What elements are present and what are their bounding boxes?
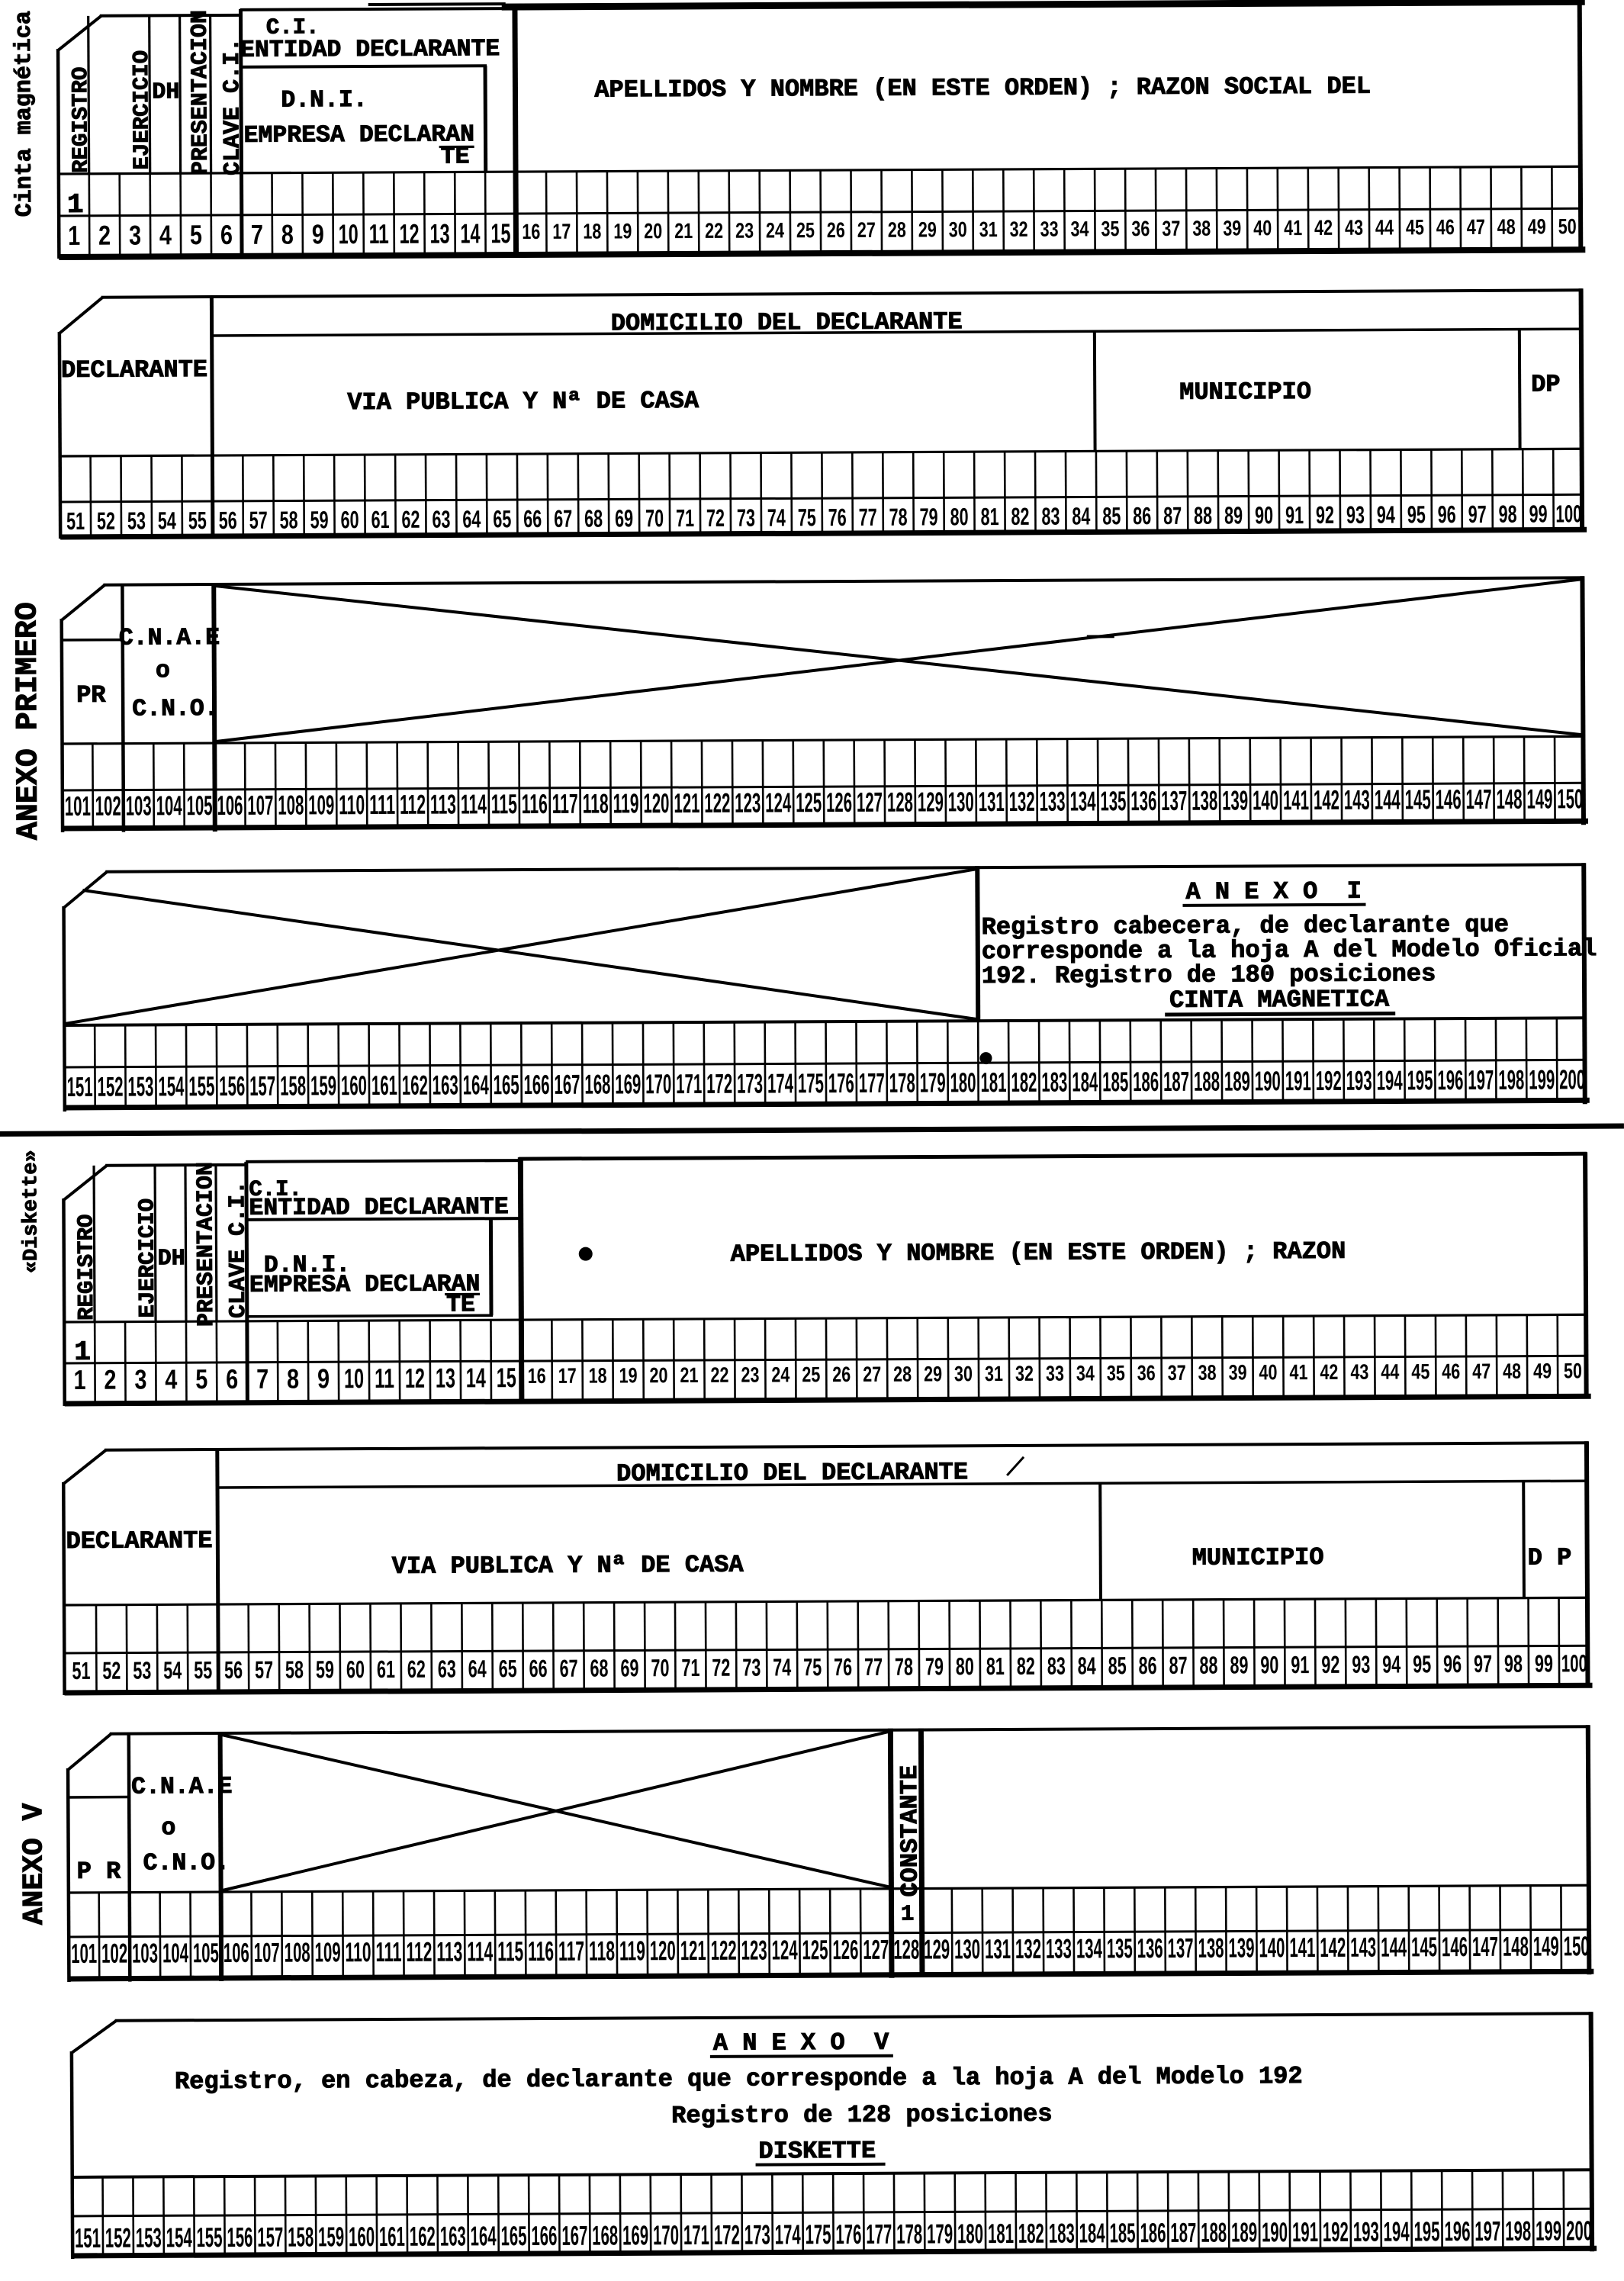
svg-text:179: 179 — [920, 1067, 946, 1098]
svg-text:55: 55 — [194, 1656, 212, 1684]
svg-text:164: 164 — [463, 1069, 489, 1100]
svg-text:93: 93 — [1346, 501, 1365, 529]
svg-text:72: 72 — [706, 504, 725, 532]
svg-text:190: 190 — [1255, 1065, 1281, 1096]
svg-text:116: 116 — [528, 1935, 554, 1967]
svg-text:94: 94 — [1377, 500, 1395, 528]
svg-text:171: 171 — [683, 2219, 709, 2250]
svg-text:47: 47 — [1472, 1359, 1491, 1383]
svg-text:105: 105 — [186, 790, 212, 821]
svg-text:112: 112 — [400, 789, 426, 820]
svg-text:158: 158 — [280, 1070, 306, 1101]
svg-text:38: 38 — [1198, 1361, 1217, 1385]
svg-text:128: 128 — [887, 787, 913, 818]
svg-text:10: 10 — [344, 1362, 364, 1394]
svg-text:165: 165 — [500, 2220, 526, 2251]
svg-text:68: 68 — [584, 505, 603, 532]
svg-text:150: 150 — [1564, 1930, 1590, 1961]
svg-text:185: 185 — [1109, 2217, 1135, 2248]
svg-text:132: 132 — [1009, 786, 1035, 817]
svg-text:13: 13 — [436, 1362, 455, 1394]
svg-text:157: 157 — [257, 2221, 283, 2253]
svg-text:47: 47 — [1467, 215, 1485, 239]
svg-text:1: 1 — [901, 1902, 915, 1927]
svg-text:PRESENTACION: PRESENTACION — [188, 10, 214, 175]
svg-text:43: 43 — [1345, 216, 1363, 240]
svg-text:187: 187 — [1170, 2217, 1196, 2248]
svg-text:154: 154 — [158, 1070, 184, 1102]
svg-text:76: 76 — [828, 503, 847, 531]
svg-text:129: 129 — [918, 786, 944, 817]
svg-text:80: 80 — [956, 1652, 974, 1680]
svg-text:135: 135 — [1107, 1932, 1133, 1964]
svg-text:197: 197 — [1468, 1064, 1494, 1095]
svg-text:DOMICILIO DEL DECLARANTE: DOMICILIO DEL DECLARANTE — [611, 307, 963, 337]
svg-text:161: 161 — [379, 2221, 405, 2252]
svg-text:117: 117 — [558, 1935, 584, 1967]
svg-text:CONSTANTE: CONSTANTE — [896, 1765, 925, 1897]
svg-text:187: 187 — [1163, 1066, 1189, 1097]
svg-text:125: 125 — [802, 1934, 828, 1965]
svg-text:189: 189 — [1231, 2216, 1257, 2247]
svg-text:34: 34 — [1070, 217, 1089, 240]
svg-text:183: 183 — [1041, 1067, 1067, 1098]
svg-text:97: 97 — [1468, 500, 1487, 528]
svg-text:55: 55 — [188, 507, 207, 534]
svg-text:23: 23 — [735, 219, 754, 243]
svg-text:56: 56 — [219, 507, 237, 534]
svg-text:136: 136 — [1137, 1932, 1163, 1964]
svg-text:26: 26 — [827, 218, 845, 242]
svg-text:130: 130 — [948, 786, 974, 817]
svg-text:99: 99 — [1529, 500, 1548, 527]
svg-text:33: 33 — [1046, 1362, 1064, 1385]
svg-text:8: 8 — [287, 1363, 299, 1395]
svg-text:39: 39 — [1229, 1360, 1247, 1384]
svg-text:183: 183 — [1049, 2218, 1075, 2249]
svg-text:115: 115 — [491, 788, 517, 819]
svg-text:79: 79 — [925, 1652, 944, 1680]
svg-text:82: 82 — [1011, 503, 1029, 530]
svg-text:A N E X O I: A N E X O I — [1185, 877, 1362, 906]
svg-text:73: 73 — [737, 504, 755, 532]
svg-text:108: 108 — [285, 1936, 310, 1967]
svg-text:164: 164 — [471, 2220, 497, 2251]
svg-text:106: 106 — [217, 790, 243, 821]
svg-text:29: 29 — [924, 1362, 942, 1385]
svg-text:200: 200 — [1566, 2215, 1592, 2246]
svg-text:74: 74 — [773, 1653, 791, 1681]
svg-text:123: 123 — [735, 787, 761, 819]
svg-text:95: 95 — [1407, 500, 1426, 528]
svg-text:191: 191 — [1285, 1065, 1311, 1096]
svg-text:126: 126 — [832, 1934, 858, 1965]
svg-text:142: 142 — [1320, 1932, 1346, 1963]
svg-text:160: 160 — [341, 1070, 367, 1101]
svg-text:126: 126 — [826, 787, 852, 818]
svg-text:60: 60 — [346, 1655, 365, 1683]
svg-text:100: 100 — [1555, 500, 1581, 527]
svg-text:PR: PR — [76, 681, 106, 709]
svg-text:145: 145 — [1411, 1931, 1437, 1962]
svg-text:38: 38 — [1192, 217, 1211, 240]
svg-text:177: 177 — [859, 1067, 885, 1099]
svg-text:2: 2 — [104, 1364, 116, 1395]
svg-text:138: 138 — [1198, 1932, 1224, 1964]
svg-text:EJERCICIO: EJERCICIO — [134, 1198, 160, 1318]
svg-text:19: 19 — [613, 219, 632, 243]
svg-text:151: 151 — [67, 1071, 93, 1102]
svg-text:65: 65 — [499, 1655, 517, 1682]
svg-text:15: 15 — [497, 1362, 516, 1393]
svg-text:172: 172 — [706, 1068, 732, 1099]
svg-text:DP: DP — [1531, 370, 1561, 398]
svg-text:198: 198 — [1505, 2215, 1531, 2247]
svg-text:66: 66 — [529, 1655, 548, 1682]
svg-text:DECLARANTE: DECLARANTE — [61, 356, 207, 384]
svg-text:REGISTRO: REGISTRO — [73, 1214, 99, 1321]
svg-text:3: 3 — [134, 1363, 146, 1395]
svg-text:173: 173 — [737, 1068, 763, 1099]
svg-text:89: 89 — [1230, 1651, 1248, 1678]
svg-text:PRESENTACION: PRESENTACION — [193, 1162, 220, 1327]
svg-text:32: 32 — [1015, 1362, 1034, 1385]
svg-text:88: 88 — [1194, 502, 1212, 529]
svg-text:161: 161 — [371, 1070, 397, 1101]
svg-text:VIA PUBLICA Y Nª DE CASA: VIA PUBLICA Y Nª DE CASA — [392, 1551, 744, 1581]
svg-text:99: 99 — [1535, 1649, 1553, 1677]
svg-text:114: 114 — [467, 1935, 493, 1967]
svg-text:41: 41 — [1289, 1360, 1307, 1384]
svg-text:96: 96 — [1438, 500, 1456, 528]
svg-text:131: 131 — [985, 1933, 1011, 1964]
svg-text:13: 13 — [429, 218, 449, 249]
svg-text:42: 42 — [1320, 1360, 1338, 1384]
svg-text:5: 5 — [190, 219, 202, 250]
svg-text:84: 84 — [1078, 1652, 1096, 1679]
svg-text:40: 40 — [1259, 1360, 1277, 1384]
svg-text:165: 165 — [494, 1069, 519, 1100]
svg-text:110: 110 — [339, 789, 365, 820]
svg-text:198: 198 — [1498, 1064, 1524, 1095]
svg-text:163: 163 — [433, 1069, 458, 1100]
svg-text:4: 4 — [159, 219, 172, 250]
svg-text:74: 74 — [767, 503, 786, 531]
svg-text:Cinta magnética: Cinta magnética — [11, 11, 38, 217]
svg-text:87: 87 — [1163, 502, 1182, 529]
svg-text:182: 182 — [1011, 1067, 1037, 1098]
svg-text:37: 37 — [1168, 1361, 1186, 1385]
svg-text:107: 107 — [247, 790, 273, 821]
svg-text:98: 98 — [1504, 1650, 1523, 1678]
svg-text:169: 169 — [615, 1068, 641, 1099]
svg-text:92: 92 — [1316, 501, 1334, 529]
svg-text:190: 190 — [1262, 2216, 1288, 2247]
svg-text:196: 196 — [1444, 2215, 1470, 2247]
svg-text:41: 41 — [1284, 216, 1302, 240]
svg-text:197: 197 — [1474, 2215, 1500, 2247]
svg-text:16: 16 — [528, 1364, 546, 1388]
svg-text:138: 138 — [1191, 785, 1217, 816]
svg-text:104: 104 — [162, 1937, 188, 1968]
svg-text:87: 87 — [1169, 1652, 1187, 1679]
svg-text:71: 71 — [681, 1654, 699, 1681]
svg-text:APELLIDOS Y NOMBRE (EN ESTE OR: APELLIDOS Y NOMBRE (EN ESTE ORDEN) ; RAZ… — [731, 1237, 1346, 1269]
svg-text:57: 57 — [249, 507, 268, 534]
svg-text:134: 134 — [1076, 1932, 1102, 1964]
svg-text:100: 100 — [1561, 1649, 1587, 1677]
svg-text:115: 115 — [497, 1935, 523, 1967]
svg-text:192: 192 — [1323, 2216, 1349, 2247]
svg-text:64: 64 — [468, 1655, 487, 1682]
svg-text:153: 153 — [127, 1070, 153, 1102]
svg-text:169: 169 — [622, 2219, 648, 2250]
svg-text:122: 122 — [711, 1935, 737, 1966]
svg-text:MUNICIPIO: MUNICIPIO — [1179, 378, 1311, 407]
svg-text:78: 78 — [895, 1653, 913, 1681]
svg-text:199: 199 — [1536, 2215, 1561, 2246]
svg-text:63: 63 — [438, 1655, 456, 1683]
svg-text:51: 51 — [66, 507, 85, 535]
svg-text:182: 182 — [1018, 2218, 1044, 2249]
svg-text:TE: TE — [446, 1292, 475, 1318]
svg-text:DOMICILIO DEL DECLARANTE: DOMICILIO DEL DECLARANTE — [616, 1458, 968, 1488]
svg-text:17: 17 — [558, 1364, 577, 1388]
svg-text:135: 135 — [1100, 785, 1126, 816]
svg-text:46: 46 — [1436, 215, 1455, 239]
svg-text:A N E X O V: A N E X O V — [713, 2028, 889, 2057]
svg-text:175: 175 — [798, 1067, 824, 1099]
svg-text:144: 144 — [1381, 1931, 1407, 1962]
svg-text:58: 58 — [285, 1655, 304, 1683]
svg-text:11: 11 — [375, 1362, 394, 1394]
svg-text:193: 193 — [1346, 1065, 1372, 1096]
svg-text:«Diskette»: «Diskette» — [20, 1150, 43, 1273]
svg-text:6: 6 — [226, 1363, 238, 1395]
svg-text:139: 139 — [1228, 1932, 1254, 1963]
svg-text:48: 48 — [1497, 215, 1516, 239]
svg-text:88: 88 — [1199, 1652, 1217, 1679]
svg-text:145: 145 — [1405, 783, 1431, 815]
svg-text:67: 67 — [554, 505, 572, 532]
svg-text:50: 50 — [1558, 214, 1577, 238]
svg-text:163: 163 — [440, 2220, 466, 2251]
svg-text:98: 98 — [1499, 500, 1517, 528]
svg-text:108: 108 — [278, 789, 304, 820]
svg-text:155: 155 — [188, 1070, 214, 1102]
svg-text:63: 63 — [432, 506, 450, 533]
svg-text:49: 49 — [1533, 1359, 1552, 1382]
svg-text:60: 60 — [340, 506, 359, 533]
svg-text:35: 35 — [1101, 217, 1119, 240]
svg-text:78: 78 — [889, 503, 908, 531]
svg-text:C.N.O.: C.N.O. — [132, 696, 219, 723]
svg-text:103: 103 — [126, 790, 152, 821]
svg-text:ANEXO V: ANEXO V — [18, 1803, 51, 1925]
svg-text:86: 86 — [1138, 1652, 1156, 1679]
svg-text:94: 94 — [1382, 1650, 1400, 1678]
svg-text:69: 69 — [620, 1654, 638, 1681]
svg-text:25: 25 — [796, 218, 815, 242]
svg-text:53: 53 — [127, 507, 146, 534]
svg-text:111: 111 — [375, 1936, 401, 1967]
svg-text:194: 194 — [1377, 1064, 1403, 1095]
svg-text:137: 137 — [1161, 785, 1187, 816]
svg-text:48: 48 — [1503, 1359, 1521, 1383]
svg-text:149: 149 — [1526, 783, 1552, 814]
svg-text:123: 123 — [741, 1935, 767, 1966]
svg-text:36: 36 — [1137, 1361, 1156, 1385]
svg-text:C.N.A.E: C.N.A.E — [131, 1774, 232, 1801]
svg-text:114: 114 — [461, 788, 487, 819]
svg-text:61: 61 — [377, 1655, 395, 1683]
svg-text:54: 54 — [158, 507, 176, 534]
svg-text:20: 20 — [644, 219, 662, 243]
svg-text:VIA PUBLICA Y Nª DE CASA: VIA PUBLICA Y Nª DE CASA — [347, 387, 699, 417]
svg-text:171: 171 — [676, 1068, 702, 1099]
svg-text:143: 143 — [1344, 784, 1370, 816]
svg-text:30: 30 — [954, 1362, 973, 1385]
svg-text:181: 181 — [980, 1067, 1006, 1098]
svg-text:186: 186 — [1133, 1066, 1159, 1097]
svg-text:77: 77 — [864, 1653, 883, 1681]
svg-text:62: 62 — [401, 506, 420, 533]
svg-text:1: 1 — [67, 189, 84, 220]
svg-text:170: 170 — [645, 1068, 671, 1099]
svg-text:152: 152 — [105, 2222, 131, 2254]
svg-text:174: 174 — [767, 1067, 793, 1099]
svg-text:37: 37 — [1162, 217, 1180, 240]
svg-text:156: 156 — [227, 2221, 252, 2253]
svg-text:81: 81 — [986, 1652, 1005, 1680]
svg-text:86: 86 — [1133, 502, 1151, 529]
svg-text:51: 51 — [72, 1657, 90, 1684]
svg-text:69: 69 — [615, 504, 633, 532]
svg-text:120: 120 — [650, 1935, 676, 1966]
svg-text:18: 18 — [589, 1364, 607, 1388]
svg-text:75: 75 — [803, 1653, 822, 1681]
svg-text:30: 30 — [949, 217, 967, 241]
svg-text:136: 136 — [1130, 785, 1156, 816]
svg-text:176: 176 — [835, 2218, 861, 2250]
svg-text:105: 105 — [193, 1937, 219, 1968]
svg-text:159: 159 — [318, 2221, 344, 2252]
svg-text:148: 148 — [1496, 783, 1522, 815]
svg-text:119: 119 — [619, 1935, 645, 1966]
svg-text:28: 28 — [888, 218, 906, 242]
svg-text:185: 185 — [1102, 1066, 1128, 1097]
svg-text:EJERCICIO: EJERCICIO — [129, 50, 155, 170]
svg-text:14: 14 — [460, 217, 480, 249]
svg-text:83: 83 — [1047, 1652, 1066, 1680]
svg-text:21: 21 — [674, 219, 693, 243]
svg-text:57: 57 — [255, 1656, 273, 1684]
svg-text:DH: DH — [158, 1246, 185, 1272]
svg-text:1: 1 — [74, 1337, 91, 1368]
svg-text:167: 167 — [561, 2220, 587, 2251]
svg-text:84: 84 — [1072, 502, 1090, 529]
svg-text:34: 34 — [1076, 1361, 1095, 1385]
svg-text:65: 65 — [493, 505, 511, 532]
svg-text:174: 174 — [775, 2218, 801, 2250]
svg-text:101: 101 — [71, 1938, 97, 1969]
svg-text:188: 188 — [1194, 1066, 1220, 1097]
svg-text:104: 104 — [156, 790, 182, 821]
svg-text:22: 22 — [710, 1363, 728, 1387]
svg-text:140: 140 — [1253, 784, 1278, 816]
svg-text:24: 24 — [766, 218, 784, 242]
svg-text:77: 77 — [859, 503, 877, 531]
svg-text:141: 141 — [1283, 784, 1309, 816]
svg-text:139: 139 — [1222, 784, 1248, 816]
svg-text:75: 75 — [798, 503, 816, 531]
svg-text:176: 176 — [828, 1067, 854, 1099]
svg-text:195: 195 — [1407, 1064, 1433, 1095]
svg-text:CINTA MAGNETICA: CINTA MAGNETICA — [1169, 986, 1390, 1015]
svg-text:186: 186 — [1140, 2217, 1166, 2248]
svg-text:146: 146 — [1442, 1931, 1468, 1962]
svg-text:130: 130 — [954, 1933, 980, 1964]
svg-text:162: 162 — [410, 2221, 436, 2252]
svg-text:70: 70 — [651, 1654, 669, 1681]
svg-text:181: 181 — [988, 2218, 1014, 2249]
svg-text:80: 80 — [950, 503, 968, 530]
svg-text:106: 106 — [224, 1937, 249, 1968]
svg-text:52: 52 — [97, 507, 115, 535]
svg-text:26: 26 — [832, 1362, 851, 1386]
svg-text:7: 7 — [256, 1363, 269, 1395]
svg-text:52: 52 — [102, 1657, 121, 1684]
svg-text:177: 177 — [866, 2218, 892, 2250]
svg-text:133: 133 — [1039, 786, 1065, 817]
svg-text:141: 141 — [1289, 1932, 1315, 1963]
svg-text:148: 148 — [1503, 1931, 1529, 1962]
svg-text:199: 199 — [1529, 1063, 1555, 1095]
svg-text:168: 168 — [584, 1069, 610, 1100]
svg-text:168: 168 — [592, 2219, 618, 2250]
svg-text:131: 131 — [979, 786, 1005, 817]
svg-text:159: 159 — [310, 1070, 336, 1101]
svg-text:120: 120 — [643, 787, 669, 819]
svg-text:116: 116 — [522, 788, 548, 819]
svg-text:DISKETTE: DISKETTE — [758, 2137, 876, 2166]
svg-text:121: 121 — [674, 787, 699, 819]
svg-text:89: 89 — [1224, 501, 1243, 529]
svg-text:o: o — [161, 1815, 175, 1842]
svg-text:2: 2 — [98, 220, 111, 251]
svg-text:22: 22 — [705, 219, 723, 243]
svg-text:P R: P R — [77, 1858, 122, 1886]
svg-text:133: 133 — [1046, 1933, 1072, 1964]
svg-text:9: 9 — [317, 1362, 330, 1394]
svg-text:61: 61 — [371, 506, 389, 533]
svg-text:44: 44 — [1381, 1359, 1399, 1383]
svg-text:71: 71 — [676, 504, 694, 532]
svg-text:16: 16 — [522, 220, 540, 243]
svg-text:192: 192 — [1316, 1065, 1342, 1096]
svg-text:194: 194 — [1384, 2215, 1410, 2247]
svg-text:76: 76 — [834, 1653, 852, 1681]
svg-text:142: 142 — [1314, 784, 1339, 816]
svg-text:o: o — [156, 658, 170, 684]
svg-text:144: 144 — [1375, 783, 1400, 815]
svg-text:170: 170 — [653, 2219, 679, 2250]
svg-text:81: 81 — [980, 503, 999, 530]
svg-text:82: 82 — [1017, 1652, 1035, 1680]
svg-text:124: 124 — [771, 1934, 797, 1965]
svg-text:72: 72 — [712, 1654, 730, 1681]
svg-text:166: 166 — [523, 1069, 549, 1100]
